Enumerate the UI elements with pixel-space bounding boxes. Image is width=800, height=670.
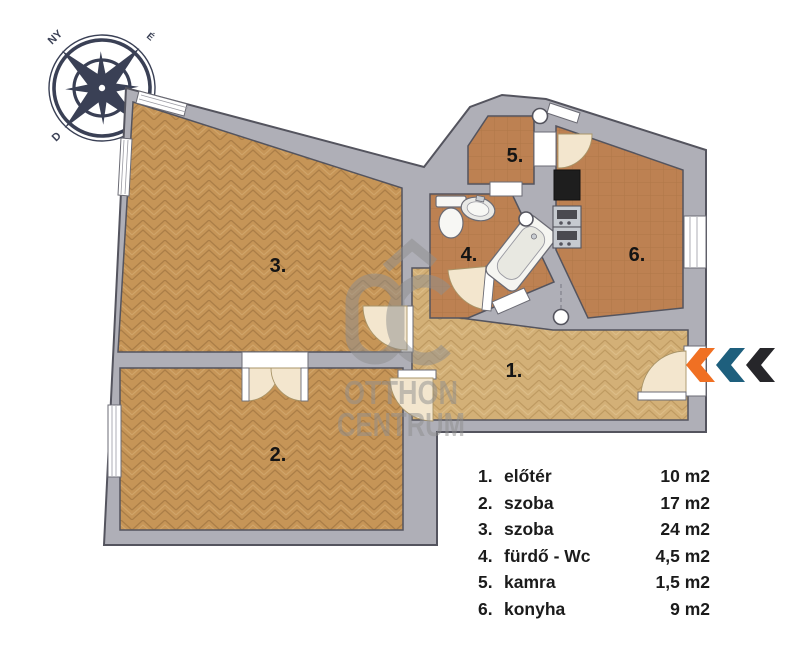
compass-label-west: NY bbox=[46, 27, 66, 47]
room-label-2: 2. bbox=[270, 444, 287, 466]
legend-num: 6. bbox=[478, 596, 504, 623]
legend-label: szoba bbox=[504, 516, 636, 543]
legend-area: 9 m2 bbox=[636, 596, 710, 623]
opening-pantry bbox=[490, 182, 522, 196]
legend-num: 5. bbox=[478, 569, 504, 596]
legend-num: 3. bbox=[478, 516, 504, 543]
door-gap-kitchen bbox=[534, 132, 556, 166]
kitchen-stove-unit bbox=[553, 227, 581, 248]
compass-label-south: D bbox=[50, 130, 64, 144]
kitchen-sink-unit bbox=[553, 206, 581, 227]
legend-row: 1. előtér 10 m2 bbox=[478, 463, 710, 490]
compass-label-north: É bbox=[144, 31, 156, 44]
legend-area: 4,5 m2 bbox=[636, 543, 710, 570]
column-mid bbox=[519, 212, 533, 226]
column-bottom bbox=[554, 310, 569, 325]
legend-label: fürdő - Wc bbox=[504, 543, 636, 570]
legend-row: 5. kamra 1,5 m2 bbox=[478, 569, 710, 596]
room-label-1: 1. bbox=[506, 360, 523, 382]
window-room2-left bbox=[108, 405, 121, 477]
toilet-bowl bbox=[439, 208, 463, 238]
legend-num: 2. bbox=[478, 490, 504, 517]
room-label-3: 3. bbox=[270, 255, 287, 277]
legend-area: 17 m2 bbox=[636, 490, 710, 517]
entrance-arrow-teal bbox=[716, 348, 745, 382]
legend-area: 10 m2 bbox=[636, 463, 710, 490]
legend-label: kamra bbox=[504, 569, 636, 596]
room-label-5: 5. bbox=[507, 145, 524, 167]
legend-num: 4. bbox=[478, 543, 504, 570]
legend-row: 4. fürdő - Wc 4,5 m2 bbox=[478, 543, 710, 570]
legend-label: szoba bbox=[504, 490, 636, 517]
legend-label: konyha bbox=[504, 596, 636, 623]
room-label-4: 4. bbox=[461, 244, 478, 266]
legend-row: 2. szoba 17 m2 bbox=[478, 490, 710, 517]
column-top bbox=[533, 109, 548, 124]
legend: 1. előtér 10 m2 2. szoba 17 m2 3. szoba … bbox=[478, 463, 710, 622]
legend-area: 24 m2 bbox=[636, 516, 710, 543]
watermark-line2: CENTRUM bbox=[337, 406, 465, 443]
kitchen-counter-dark bbox=[554, 170, 580, 200]
room-label-6: 6. bbox=[629, 244, 646, 266]
legend-num: 1. bbox=[478, 463, 504, 490]
entrance-door-leaf bbox=[638, 392, 686, 400]
legend-label: előtér bbox=[504, 463, 636, 490]
entrance-arrows bbox=[686, 348, 775, 382]
window-kitchen-right bbox=[684, 216, 706, 268]
floorplan-stage: NY É D bbox=[0, 0, 800, 670]
legend-area: 1,5 m2 bbox=[636, 569, 710, 596]
entrance-arrow-black bbox=[746, 348, 775, 382]
legend-row: 3. szoba 24 m2 bbox=[478, 516, 710, 543]
door-gap-room3-room2 bbox=[242, 352, 308, 369]
legend-row: 6. konyha 9 m2 bbox=[478, 596, 710, 623]
